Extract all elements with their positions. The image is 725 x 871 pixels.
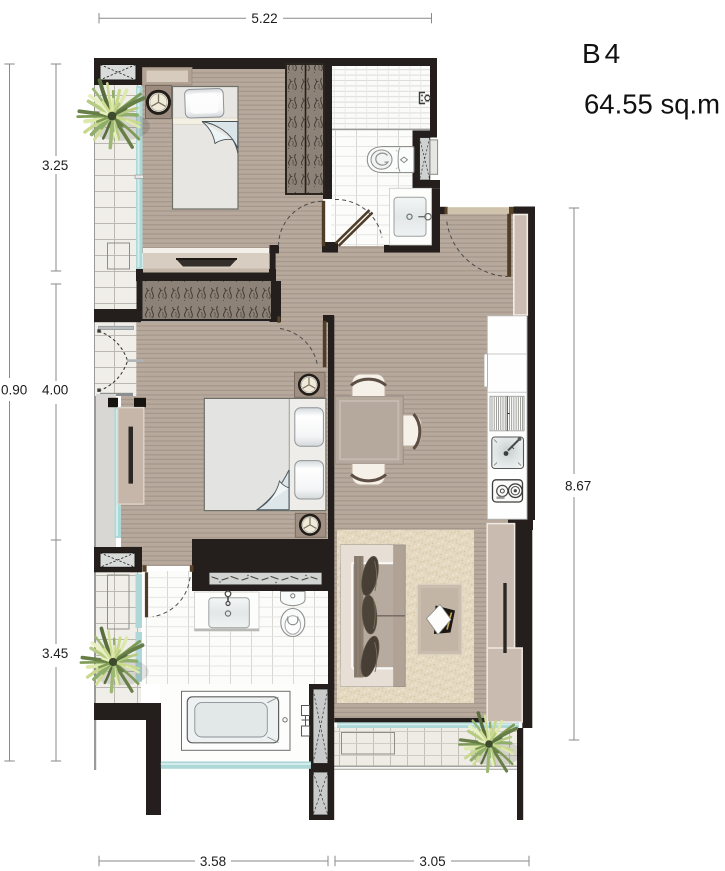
svg-text:5.22: 5.22	[251, 11, 277, 26]
svg-text:3.58: 3.58	[200, 854, 226, 869]
svg-text:0.90: 0.90	[1, 383, 27, 398]
svg-text:3.45: 3.45	[42, 646, 68, 661]
svg-text:4.00: 4.00	[42, 383, 68, 398]
svg-text:B4: B4	[582, 38, 624, 69]
svg-text:8.67: 8.67	[565, 479, 591, 494]
svg-text:64.55 sq.m: 64.55 sq.m	[584, 89, 720, 120]
svg-text:3.25: 3.25	[42, 158, 68, 173]
svg-text:3.05: 3.05	[419, 854, 445, 869]
